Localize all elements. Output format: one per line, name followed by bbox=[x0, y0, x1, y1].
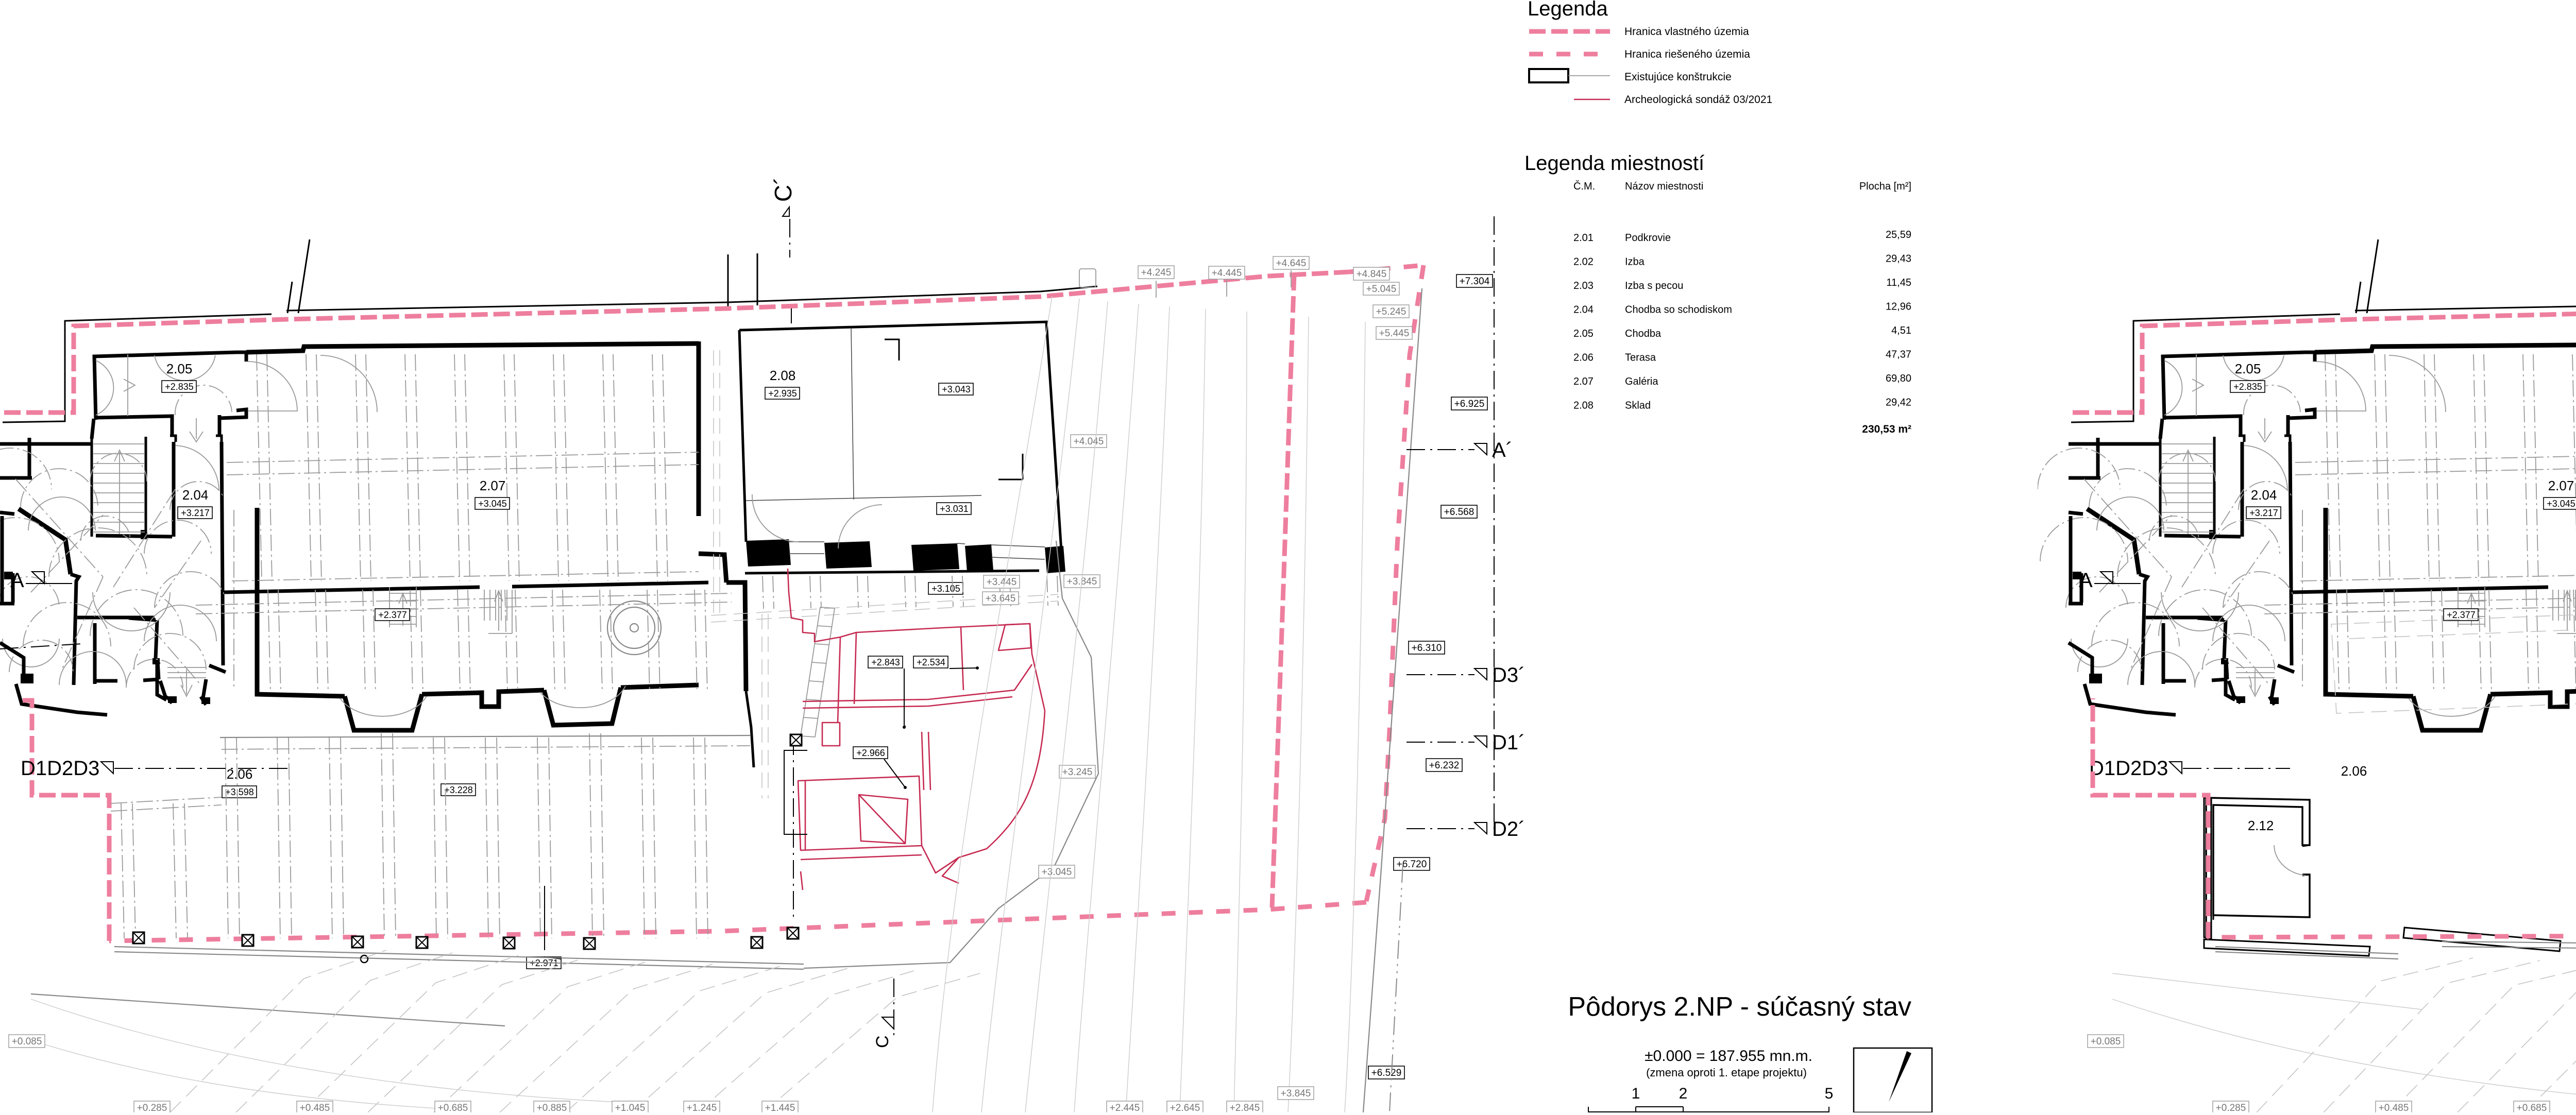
svg-text:±0.000 = 187.955 mn.m.: ±0.000 = 187.955 mn.m. bbox=[1645, 1048, 1812, 1065]
svg-text:+6.720: +6.720 bbox=[1397, 859, 1427, 870]
svg-text:+2.966: +2.966 bbox=[856, 748, 885, 758]
svg-text:29,43: 29,43 bbox=[1886, 253, 1911, 265]
svg-text:+6.568: +6.568 bbox=[1444, 507, 1475, 518]
svg-text:12,96: 12,96 bbox=[1886, 301, 1911, 313]
svg-text:D2´: D2´ bbox=[1492, 818, 1525, 840]
svg-text:2.02: 2.02 bbox=[1573, 256, 1594, 268]
svg-text:2.06: 2.06 bbox=[1573, 352, 1594, 364]
svg-text:2.07: 2.07 bbox=[480, 478, 506, 493]
svg-text:+0.685: +0.685 bbox=[2517, 1103, 2547, 1112]
svg-text:+1.045: +1.045 bbox=[615, 1103, 646, 1112]
svg-text:+6.925: +6.925 bbox=[1454, 399, 1485, 409]
svg-text:+4.045: +4.045 bbox=[1074, 436, 1104, 447]
svg-text:Legenda: Legenda bbox=[1528, 0, 1608, 20]
svg-text:Izba s pecou: Izba s pecou bbox=[1625, 280, 1683, 291]
svg-text:25,59: 25,59 bbox=[1886, 229, 1911, 241]
svg-text:+0.485: +0.485 bbox=[2379, 1103, 2409, 1112]
svg-text:+1.445: +1.445 bbox=[765, 1103, 795, 1112]
svg-text:C: C bbox=[873, 1035, 892, 1048]
svg-text:+3.228: +3.228 bbox=[444, 785, 473, 795]
svg-text:D3´: D3´ bbox=[1492, 664, 1525, 687]
svg-text:2.05: 2.05 bbox=[166, 361, 193, 376]
svg-text:D1D2D3: D1D2D3 bbox=[21, 757, 99, 780]
svg-text:+3.245: +3.245 bbox=[1062, 767, 1093, 778]
svg-text:(zmena oproti 1. etape projekt: (zmena oproti 1. etape projektu) bbox=[1646, 1066, 1807, 1079]
svg-text:+3.045: +3.045 bbox=[2547, 499, 2575, 509]
svg-text:230,53 m²: 230,53 m² bbox=[1862, 423, 1911, 435]
svg-text:+4.245: +4.245 bbox=[1141, 267, 1172, 278]
svg-text:2.03: 2.03 bbox=[1573, 280, 1594, 291]
svg-text:+6.310: +6.310 bbox=[1412, 643, 1442, 654]
svg-text:2.01: 2.01 bbox=[1573, 232, 1594, 244]
svg-text:2.08: 2.08 bbox=[1573, 400, 1594, 411]
svg-text:11,45: 11,45 bbox=[1886, 277, 1911, 288]
svg-text:+3.045: +3.045 bbox=[478, 499, 507, 509]
svg-text:+0.885: +0.885 bbox=[537, 1103, 567, 1112]
svg-text:A: A bbox=[2079, 569, 2093, 592]
svg-text:2.04: 2.04 bbox=[2251, 487, 2277, 503]
svg-text:+0.285: +0.285 bbox=[137, 1103, 167, 1112]
svg-text:+3.043: +3.043 bbox=[942, 384, 971, 394]
svg-text:1: 1 bbox=[1632, 1085, 1640, 1102]
svg-text:2.04: 2.04 bbox=[182, 487, 209, 503]
svg-text:+4.445: +4.445 bbox=[1212, 268, 1242, 279]
svg-text:Sklad: Sklad bbox=[1625, 400, 1651, 411]
svg-text:Podkrovie: Podkrovie bbox=[1625, 232, 1671, 244]
svg-text:Galéria: Galéria bbox=[1625, 376, 1658, 387]
svg-text:+5.045: +5.045 bbox=[1366, 284, 1397, 295]
svg-text:+2.445: +2.445 bbox=[1110, 1103, 1140, 1112]
svg-text:D1´: D1´ bbox=[1492, 731, 1525, 754]
svg-text:+0.285: +0.285 bbox=[2216, 1103, 2246, 1112]
svg-text:+3.445: +3.445 bbox=[987, 577, 1017, 588]
svg-text:+5.445: +5.445 bbox=[1379, 328, 1410, 339]
svg-text:+3.645: +3.645 bbox=[986, 593, 1016, 604]
svg-text:+0.485: +0.485 bbox=[300, 1103, 330, 1112]
svg-text:+3.031: +3.031 bbox=[940, 504, 969, 514]
svg-text:Pôdorys 2.NP - súčasný stav: Pôdorys 2.NP - súčasný stav bbox=[1568, 992, 1911, 1022]
svg-text:+2.845: +2.845 bbox=[1230, 1103, 1260, 1112]
svg-text:+1.245: +1.245 bbox=[687, 1103, 717, 1112]
svg-text:2.04: 2.04 bbox=[1573, 304, 1594, 316]
svg-text:A´: A´ bbox=[1492, 439, 1513, 461]
svg-text:Izba: Izba bbox=[1625, 256, 1645, 268]
svg-text:Hranica riešeného územia: Hranica riešeného územia bbox=[1624, 48, 1750, 60]
svg-text:+2.935: +2.935 bbox=[768, 388, 797, 399]
svg-text:2.05: 2.05 bbox=[1573, 328, 1594, 339]
svg-text:+7.304: +7.304 bbox=[1460, 276, 1490, 287]
svg-text:Názov miestnosti: Názov miestnosti bbox=[1625, 181, 1703, 192]
svg-text:Plocha [m²]: Plocha [m²] bbox=[1859, 181, 1911, 192]
svg-text:2.06: 2.06 bbox=[2341, 763, 2367, 779]
svg-text:Chodba: Chodba bbox=[1625, 328, 1662, 339]
svg-text:+2.534: +2.534 bbox=[917, 657, 945, 667]
svg-text:+0.085: +0.085 bbox=[2091, 1036, 2121, 1047]
svg-text:+3.045: +3.045 bbox=[1042, 867, 1072, 878]
svg-text:2.12: 2.12 bbox=[2248, 818, 2274, 833]
svg-text:+6.529: +6.529 bbox=[1371, 1068, 1402, 1078]
svg-text:+2.835: +2.835 bbox=[165, 382, 194, 392]
svg-text:2: 2 bbox=[1679, 1085, 1688, 1102]
svg-text:69,80: 69,80 bbox=[1886, 373, 1911, 384]
svg-text:+3.598: +3.598 bbox=[225, 787, 254, 797]
svg-text:+3.217: +3.217 bbox=[181, 508, 210, 518]
svg-text:Archeologická sondáž 03/2021: Archeologická sondáž 03/2021 bbox=[1624, 94, 1772, 106]
svg-text:+2.645: +2.645 bbox=[1170, 1103, 1200, 1112]
svg-text:5: 5 bbox=[1825, 1085, 1834, 1102]
svg-text:C´: C´ bbox=[770, 177, 796, 202]
svg-text:Chodba so schodiskom: Chodba so schodiskom bbox=[1625, 304, 1732, 316]
svg-text:A: A bbox=[10, 569, 24, 592]
svg-text:+5.245: +5.245 bbox=[1376, 306, 1406, 317]
svg-text:2.07: 2.07 bbox=[2548, 478, 2574, 493]
svg-text:47,37: 47,37 bbox=[1886, 349, 1911, 361]
svg-text:+0.685: +0.685 bbox=[438, 1103, 468, 1112]
svg-text:Č.M.: Č.M. bbox=[1573, 180, 1595, 192]
svg-text:+4.645: +4.645 bbox=[1276, 258, 1307, 269]
svg-text:Legenda miestností: Legenda miestností bbox=[1524, 152, 1704, 175]
svg-text:+3.217: +3.217 bbox=[2249, 508, 2278, 518]
svg-text:+2.377: +2.377 bbox=[378, 610, 407, 620]
svg-text:+3.105: +3.105 bbox=[931, 584, 960, 594]
svg-text:+2.843: +2.843 bbox=[871, 657, 900, 667]
svg-text:2.07: 2.07 bbox=[1573, 376, 1594, 387]
svg-text:29,42: 29,42 bbox=[1886, 397, 1911, 408]
svg-text:4,51: 4,51 bbox=[1891, 325, 1911, 336]
svg-text:2.08: 2.08 bbox=[770, 368, 796, 383]
svg-text:+3.845: +3.845 bbox=[1281, 1088, 1311, 1099]
svg-text:+0.085: +0.085 bbox=[12, 1036, 42, 1047]
svg-text:Hranica vlastného územia: Hranica vlastného územia bbox=[1624, 26, 1749, 38]
svg-text:D1D2D3: D1D2D3 bbox=[2089, 757, 2168, 780]
svg-text:Terasa: Terasa bbox=[1625, 352, 1656, 364]
svg-text:+6.232: +6.232 bbox=[1429, 760, 1460, 771]
svg-text:+4.845: +4.845 bbox=[1357, 269, 1387, 280]
svg-text:+2.835: +2.835 bbox=[2233, 382, 2262, 392]
svg-text:Existujúce konštrukcie: Existujúce konštrukcie bbox=[1624, 71, 1732, 83]
svg-text:2.05: 2.05 bbox=[2235, 361, 2261, 376]
